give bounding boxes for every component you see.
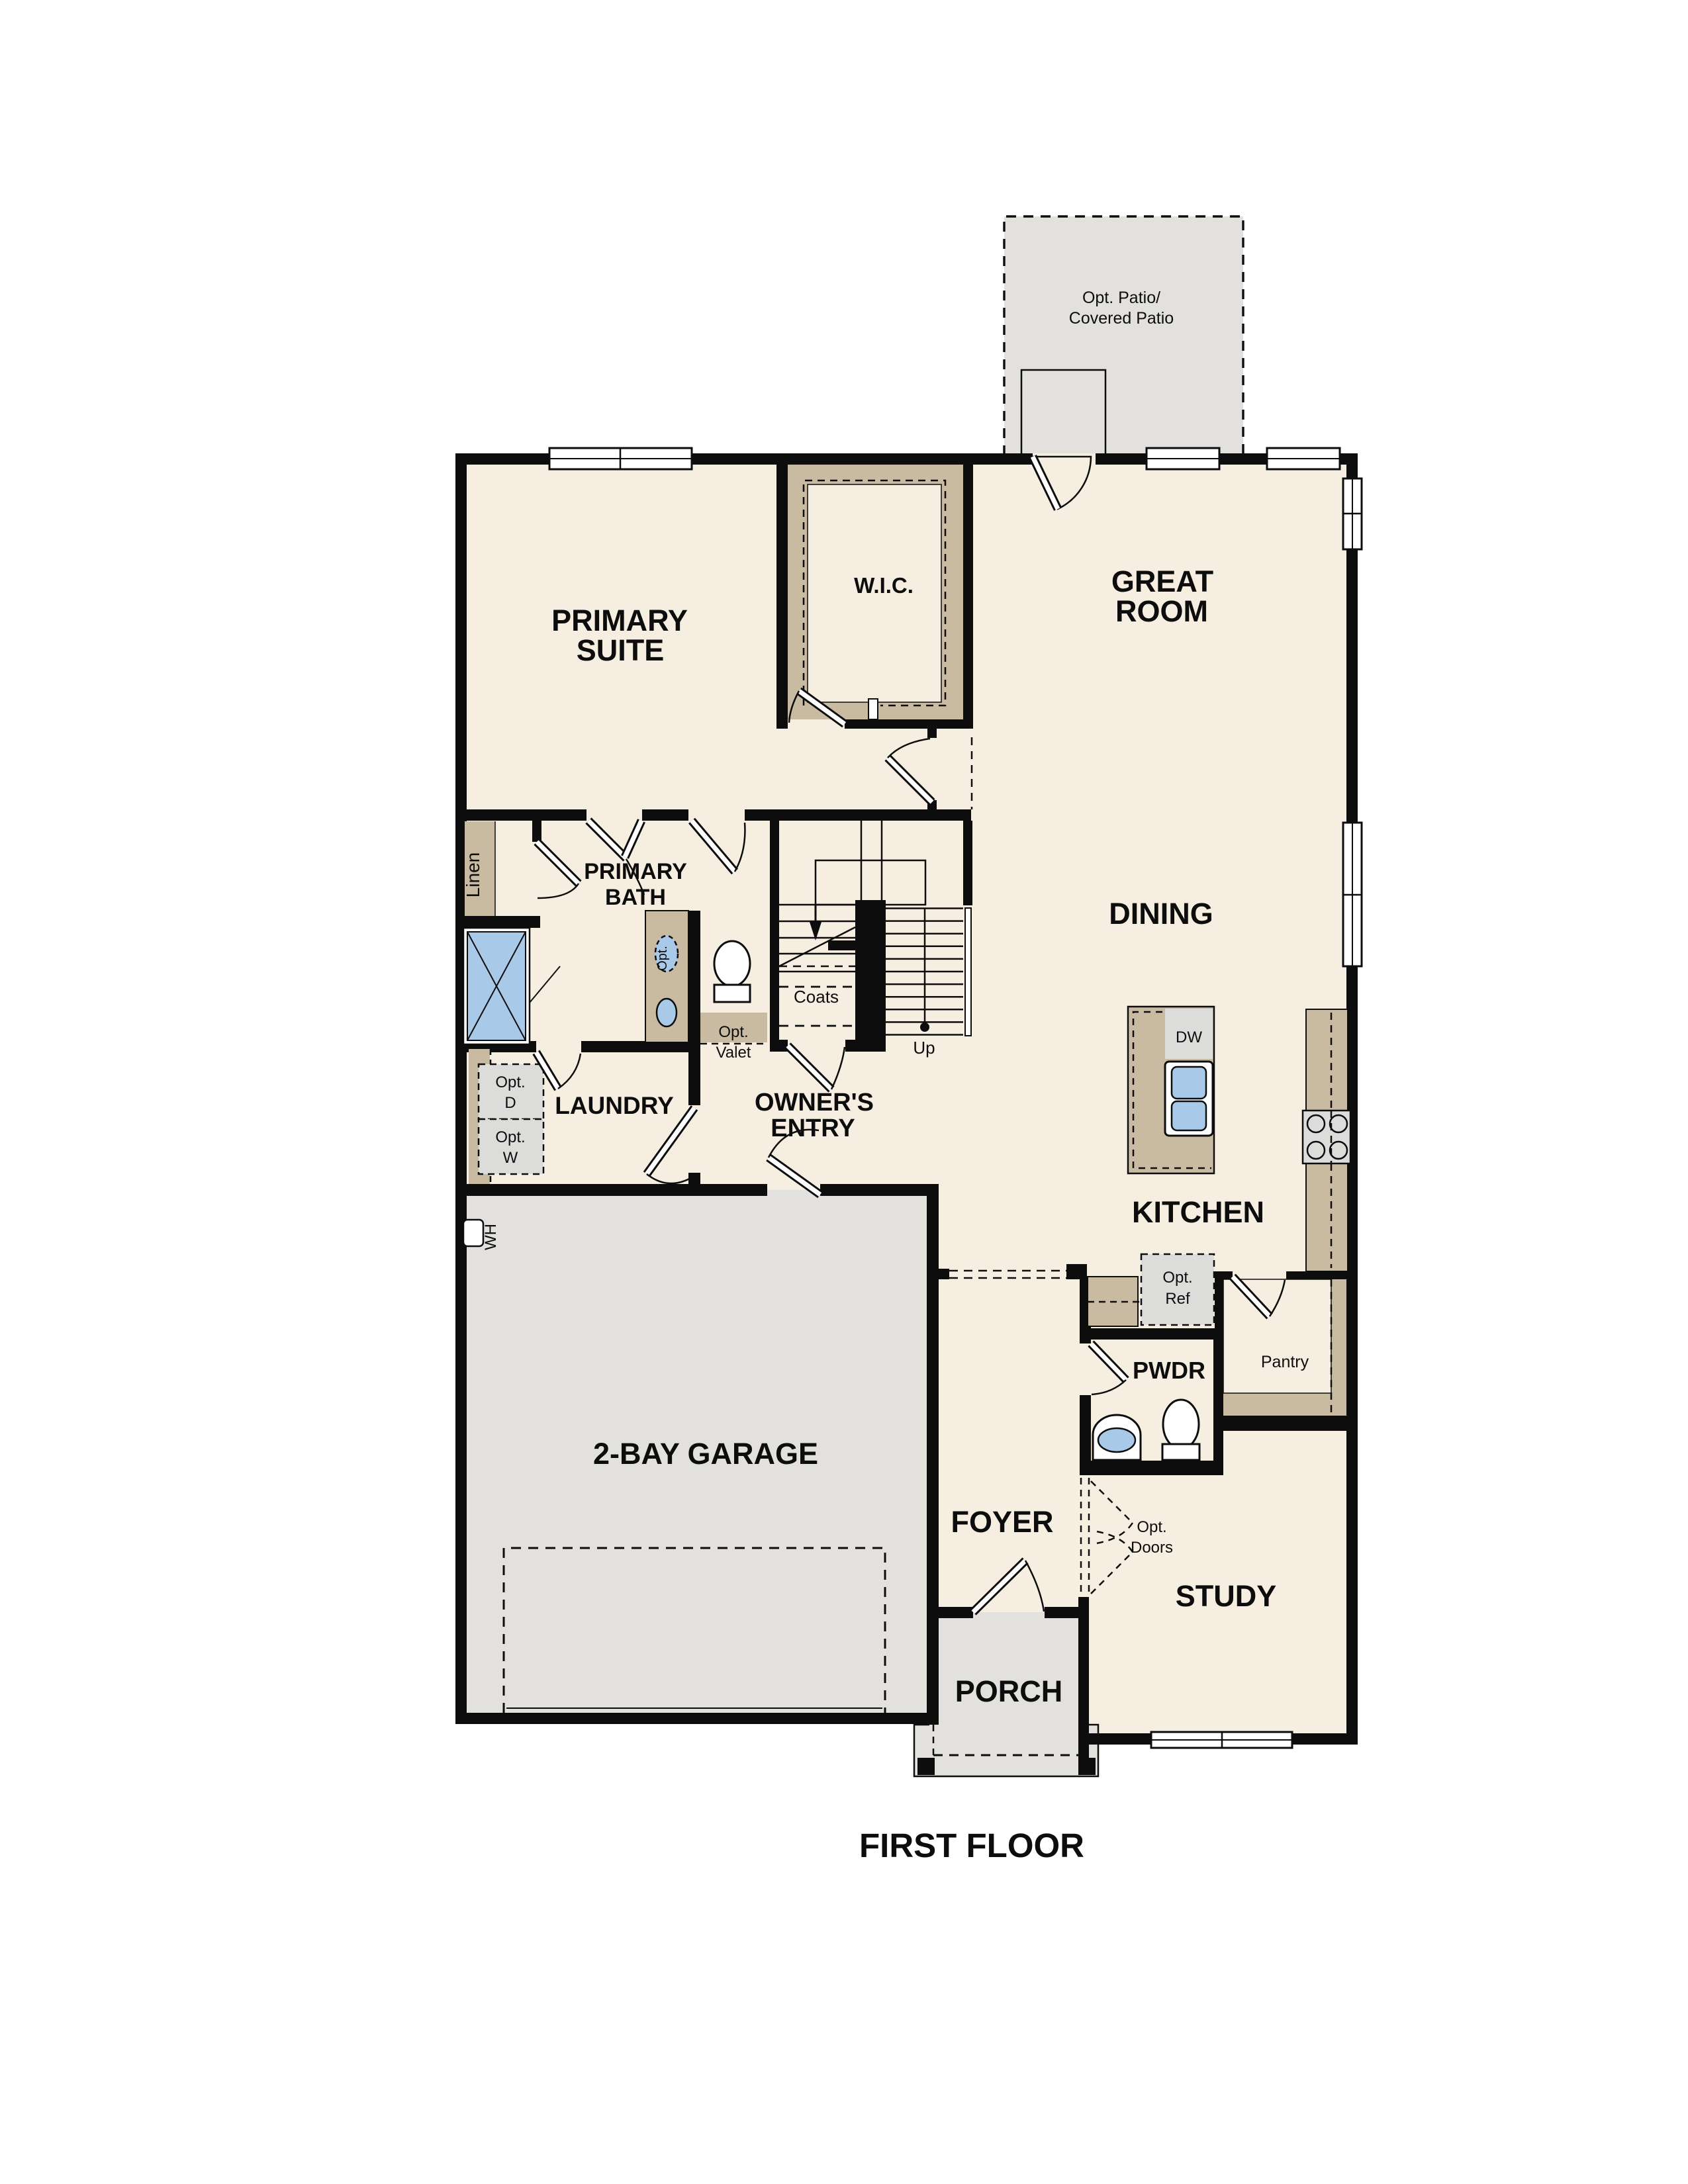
- svg-text:PRIMARY: PRIMARY: [551, 604, 688, 637]
- svg-text:SUITE: SUITE: [577, 633, 665, 667]
- svg-text:KITCHEN: KITCHEN: [1132, 1195, 1264, 1229]
- svg-text:LAUNDRY: LAUNDRY: [555, 1092, 674, 1119]
- svg-text:Covered Patio: Covered Patio: [1069, 309, 1174, 328]
- svg-text:ENTRY: ENTRY: [771, 1115, 855, 1142]
- svg-text:WH: WH: [482, 1224, 500, 1250]
- svg-text:Ref: Ref: [1165, 1290, 1190, 1308]
- svg-text:D: D: [504, 1094, 516, 1112]
- svg-text:Opt.: Opt.: [1137, 1518, 1166, 1536]
- svg-text:STUDY: STUDY: [1176, 1579, 1277, 1613]
- svg-text:FOYER: FOYER: [951, 1505, 1053, 1539]
- svg-text:PRIMARY: PRIMARY: [584, 859, 687, 884]
- svg-text:DINING: DINING: [1109, 897, 1213, 931]
- svg-text:ROOM: ROOM: [1115, 594, 1208, 628]
- svg-text:Coats: Coats: [794, 987, 839, 1007]
- svg-text:W.I.C.: W.I.C.: [854, 573, 914, 598]
- svg-text:Opt.: Opt.: [495, 1073, 525, 1091]
- svg-text:Valet: Valet: [716, 1044, 751, 1062]
- svg-text:Up: Up: [913, 1038, 935, 1058]
- svg-text:Opt.: Opt.: [655, 946, 670, 971]
- svg-text:BATH: BATH: [605, 885, 666, 910]
- svg-text:Opt.: Opt.: [718, 1023, 748, 1041]
- svg-text:Opt.: Opt.: [495, 1128, 525, 1146]
- svg-text:PWDR: PWDR: [1133, 1357, 1205, 1384]
- svg-text:PORCH: PORCH: [955, 1674, 1063, 1708]
- svg-text:GREAT: GREAT: [1111, 565, 1213, 598]
- svg-text:Doors: Doors: [1131, 1539, 1173, 1557]
- svg-text:2-BAY GARAGE: 2-BAY GARAGE: [593, 1437, 818, 1471]
- svg-text:Opt.: Opt.: [1162, 1269, 1192, 1287]
- svg-text:DW: DW: [1176, 1028, 1202, 1046]
- svg-text:FIRST FLOOR: FIRST FLOOR: [859, 1827, 1084, 1864]
- svg-text:Pantry: Pantry: [1261, 1353, 1309, 1371]
- svg-text:Linen: Linen: [463, 852, 483, 898]
- svg-text:Opt. Patio/: Opt. Patio/: [1082, 289, 1160, 307]
- svg-text:OWNER'S: OWNER'S: [755, 1089, 874, 1116]
- svg-text:W: W: [503, 1149, 518, 1167]
